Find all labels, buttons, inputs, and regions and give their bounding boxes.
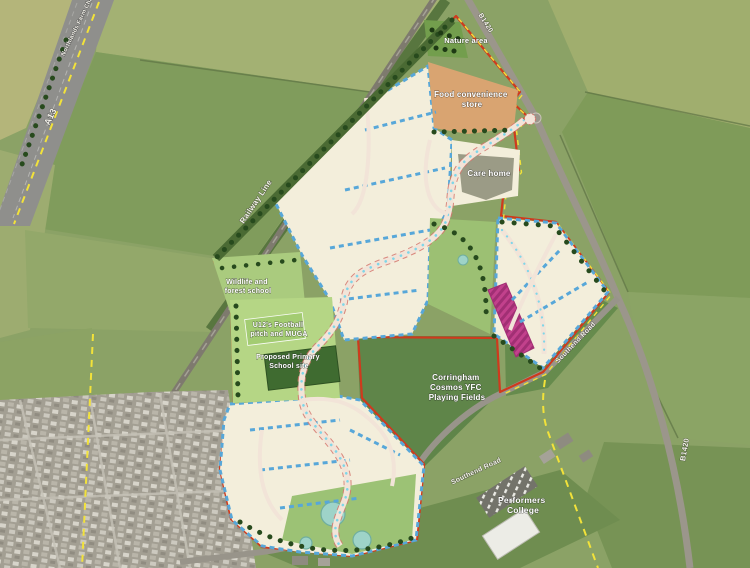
label-nature-area: Nature area — [444, 36, 488, 45]
masterplan-map: Nature area Food convenience store Care … — [0, 0, 750, 568]
wedge-pond — [458, 255, 468, 265]
site-access-roundabout — [525, 114, 536, 125]
aerial-masterplan: Nature area Food convenience store Care … — [0, 0, 750, 568]
label-care-home: Care home — [467, 169, 510, 178]
label-playing-fields: Corringham Cosmos YFC Playing Fields — [429, 373, 486, 402]
urban-area — [0, 390, 256, 568]
